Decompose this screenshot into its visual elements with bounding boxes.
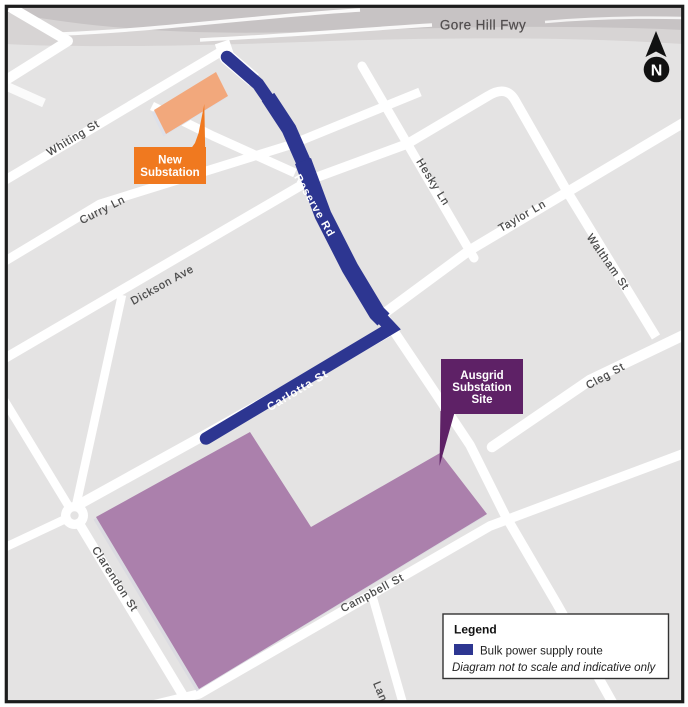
svg-text:Substation: Substation xyxy=(452,382,511,394)
svg-text:Gore Hill Fwy: Gore Hill Fwy xyxy=(440,18,526,33)
svg-text:New: New xyxy=(158,155,182,167)
svg-text:Bulk power supply route: Bulk power supply route xyxy=(480,646,603,658)
svg-text:Site: Site xyxy=(471,394,492,406)
svg-text:N: N xyxy=(651,63,663,80)
svg-text:Diagram not to scale and indic: Diagram not to scale and indicative only xyxy=(452,662,657,674)
svg-text:Substation: Substation xyxy=(140,167,199,179)
svg-text:Ausgrid: Ausgrid xyxy=(460,370,503,382)
svg-text:Legend: Legend xyxy=(454,623,497,637)
